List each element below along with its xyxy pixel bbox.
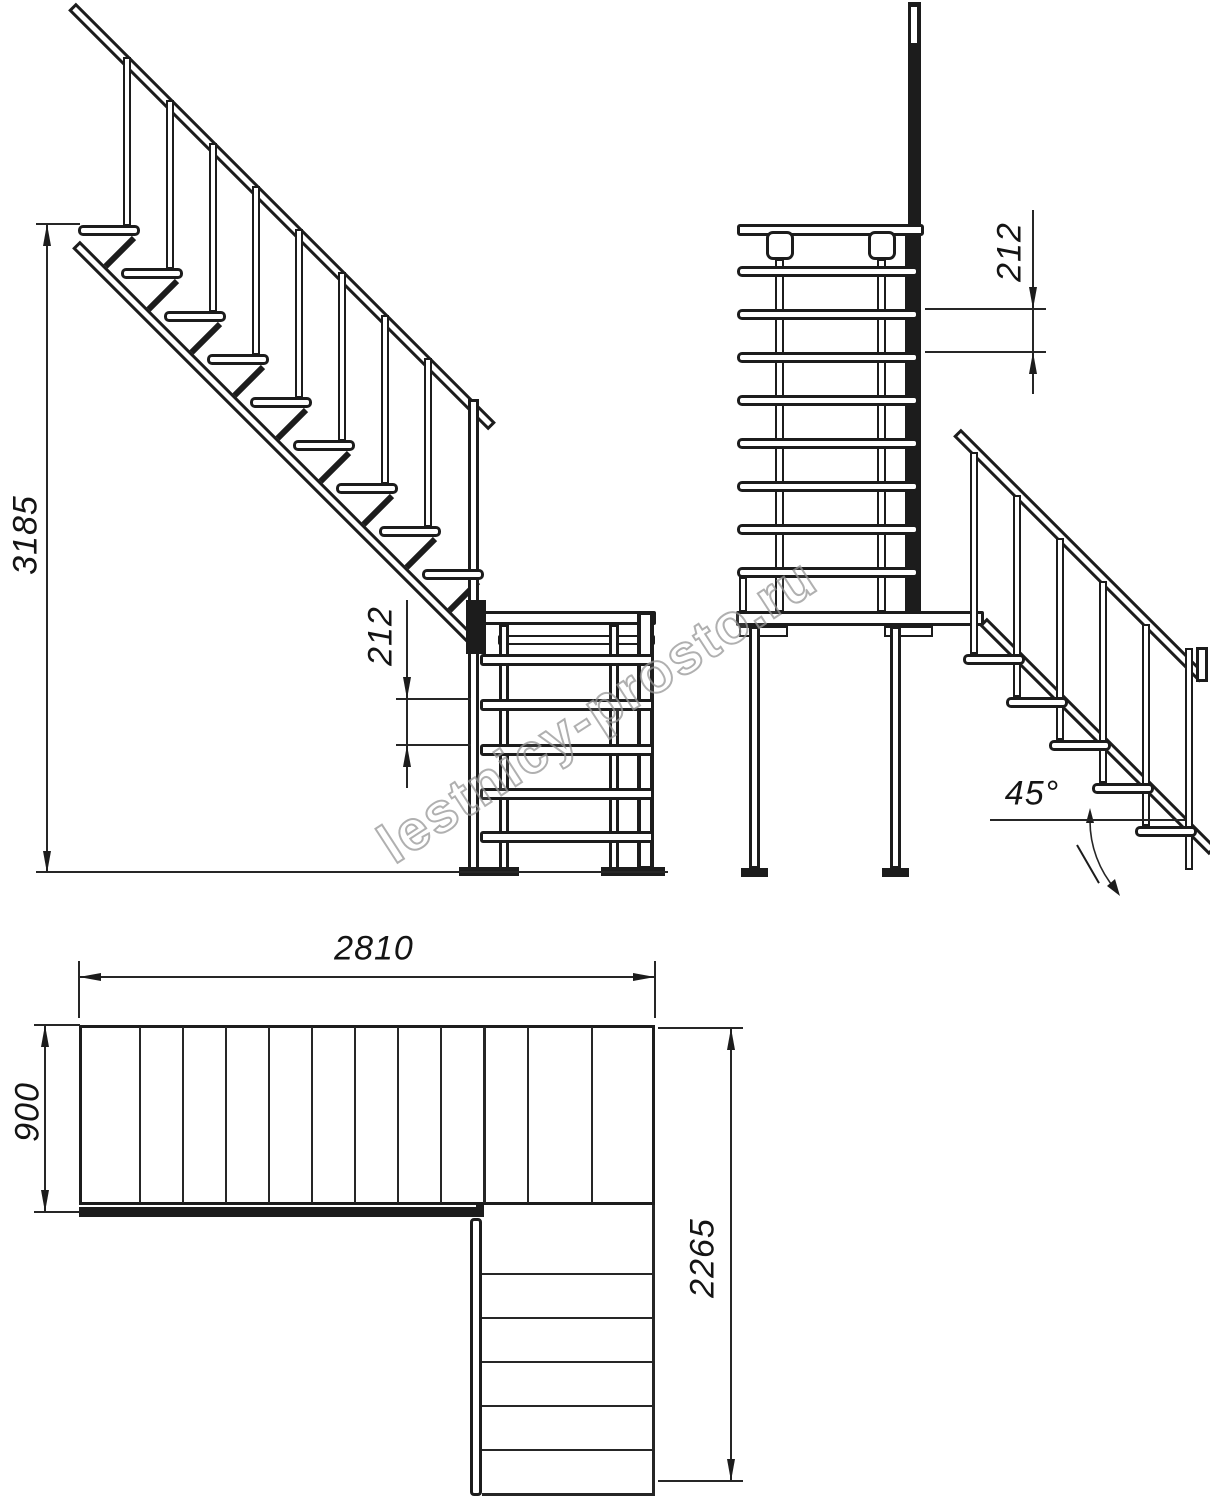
tread	[737, 309, 919, 320]
dimension-arrow	[43, 851, 51, 873]
tread	[250, 397, 312, 408]
platform-subrail	[737, 224, 924, 236]
tread	[480, 788, 654, 800]
plan-outline	[79, 1025, 655, 1205]
tread	[379, 526, 441, 537]
baluster	[338, 272, 346, 441]
plan-tread-line	[482, 1493, 655, 1496]
ground-line	[36, 871, 668, 874]
stringer-junction	[466, 600, 486, 654]
dimension-arrow	[41, 1025, 49, 1047]
plan-tread-line	[652, 1205, 655, 1496]
plan-tread-line	[354, 1027, 357, 1203]
plan-tread-line	[527, 1027, 530, 1203]
baluster-connector	[868, 231, 896, 260]
baluster-connector	[766, 231, 794, 260]
plan-tread-line	[482, 1361, 652, 1364]
tread-brace	[273, 407, 308, 442]
tread	[737, 567, 919, 578]
tread	[336, 483, 398, 494]
tread-brace	[402, 536, 437, 571]
tread	[78, 225, 140, 236]
baluster	[295, 229, 303, 398]
stringer-junction	[79, 1207, 484, 1217]
plan-tread-line	[440, 1027, 443, 1203]
support-foot	[882, 868, 909, 877]
platform-deck	[477, 611, 656, 625]
platform-subrail	[498, 635, 655, 645]
tread	[737, 481, 919, 492]
baluster	[209, 143, 217, 312]
stair-blueprint: 3185 212 212 2810 900 2265 45° lestnicy-…	[0, 0, 1210, 1500]
tread	[207, 354, 269, 365]
plan-tread-line	[268, 1027, 271, 1203]
dimension-arrow	[727, 1028, 735, 1050]
tread	[737, 395, 919, 406]
handrail-post-slot	[911, 7, 917, 43]
dimension-45deg-label: 45°	[1005, 775, 1059, 814]
dimension-212-right-label: 212	[991, 222, 1030, 282]
plan-tread-line	[591, 1027, 594, 1203]
plan-lower-stringer	[470, 1218, 482, 1496]
baluster	[1099, 581, 1107, 783]
tread	[737, 352, 919, 363]
tread-brace	[230, 364, 265, 399]
stair-handrail	[953, 428, 1207, 682]
tread-brace	[316, 450, 351, 485]
tread	[293, 440, 355, 451]
dimension-2265-label: 2265	[684, 1218, 723, 1298]
support-post	[749, 626, 760, 869]
support-foot	[741, 868, 768, 877]
tread	[737, 524, 919, 535]
plan-tread-line	[225, 1027, 228, 1203]
dimension-line	[78, 961, 80, 1018]
tread	[1049, 740, 1111, 751]
dimension-line	[730, 1028, 732, 1481]
dimension-arrow	[43, 224, 51, 246]
dimension-line	[46, 224, 48, 873]
dimension-arrow	[403, 745, 411, 767]
stair-stringer	[72, 240, 480, 648]
plan-tread-line	[482, 1317, 652, 1320]
plan-tread-line	[397, 1027, 400, 1203]
dimension-2810-label: 2810	[334, 930, 414, 969]
dimension-3185-label: 3185	[7, 495, 46, 575]
tread	[1006, 697, 1068, 708]
tread	[164, 311, 226, 322]
tread	[963, 654, 1025, 665]
dimension-line	[654, 961, 656, 1018]
baluster	[166, 100, 174, 269]
tread	[480, 654, 654, 666]
plan-tread-line	[483, 1027, 486, 1203]
dimension-212-left-label: 212	[362, 606, 401, 666]
platform-deck	[736, 611, 984, 626]
baluster	[381, 315, 389, 484]
tread	[737, 266, 919, 277]
tread-brace	[101, 235, 136, 270]
dimension-line	[925, 308, 1046, 310]
dimension-arrow	[727, 1459, 735, 1481]
plan-tread-line	[482, 1405, 652, 1408]
dimension-arrow	[1029, 287, 1037, 309]
tread	[480, 699, 654, 711]
plan-tread-line	[182, 1027, 185, 1203]
baluster	[424, 358, 432, 527]
handrail-end-cap	[1196, 647, 1208, 682]
baluster	[1056, 538, 1064, 740]
plan-tread-line	[482, 1273, 652, 1276]
dimension-900-label: 900	[9, 1082, 48, 1142]
dimension-arrow	[1029, 352, 1037, 374]
tread	[422, 569, 484, 580]
dimension-arrow	[403, 677, 411, 699]
support-post	[890, 626, 901, 869]
plan-tread-line	[482, 1449, 652, 1452]
baluster	[123, 57, 131, 226]
handrail-post-end-on	[905, 228, 921, 620]
dimension-arrow	[41, 1190, 49, 1212]
tread-brace	[359, 493, 394, 528]
tread-brace	[144, 278, 179, 313]
dimension-line	[990, 819, 1185, 821]
dimension-line	[925, 351, 1046, 353]
tread	[121, 268, 183, 279]
angle-arc-icon	[1060, 780, 1210, 900]
support-post	[739, 577, 747, 612]
dimension-arrow	[633, 973, 655, 981]
dimension-arrow	[79, 973, 101, 981]
tread-brace	[187, 321, 222, 356]
tread	[480, 744, 654, 756]
baluster	[252, 186, 260, 355]
plan-tread-line	[139, 1027, 142, 1203]
leg-bracket	[739, 626, 788, 637]
baluster	[1013, 495, 1021, 697]
baluster	[970, 452, 978, 654]
tread	[480, 831, 654, 843]
tread	[737, 438, 919, 449]
dimension-line	[79, 976, 655, 978]
plan-tread-line	[311, 1027, 314, 1203]
